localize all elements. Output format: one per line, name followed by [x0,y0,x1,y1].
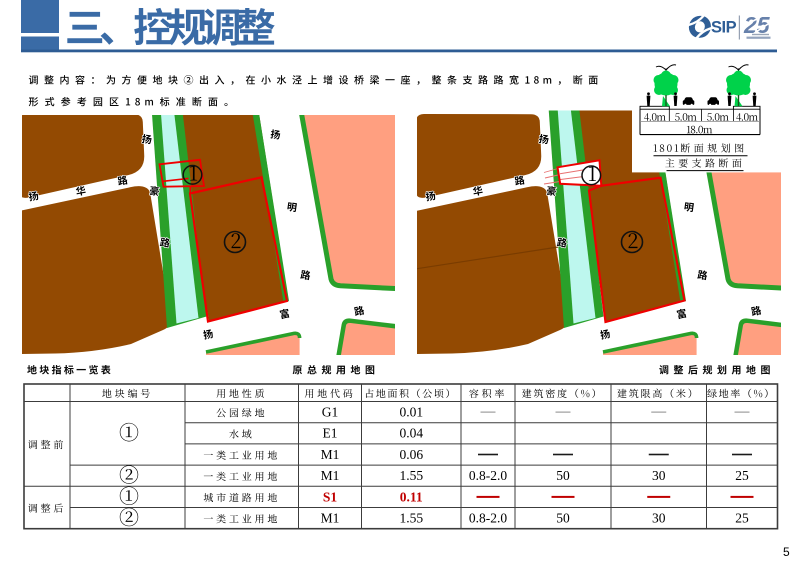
svg-text:0.8-2.0: 0.8-2.0 [469,468,507,483]
svg-text:25: 25 [735,511,749,526]
svg-text:0.8-2.0: 0.8-2.0 [469,511,507,526]
svg-text:1.55: 1.55 [399,511,423,526]
svg-text:E1: E1 [323,426,338,441]
svg-text:0.06: 0.06 [399,447,423,462]
svg-text:M1: M1 [321,447,340,462]
svg-text:0.11: 0.11 [400,489,423,504]
svg-text:50: 50 [556,511,570,526]
svg-text:30: 30 [652,468,666,483]
svg-text:M1: M1 [321,468,340,483]
svg-text:5: 5 [783,545,790,559]
svg-text:0.04: 0.04 [399,426,423,441]
svg-text:0.01: 0.01 [399,405,423,420]
svg-text:50: 50 [556,468,570,483]
svg-text:S1: S1 [323,489,338,504]
svg-text:G1: G1 [322,405,339,420]
svg-text:1.55: 1.55 [399,468,423,483]
svg-text:M1: M1 [321,511,340,526]
svg-text:SIP: SIP [711,19,737,37]
svg-text:25: 25 [735,468,749,483]
svg-text:30: 30 [652,511,666,526]
